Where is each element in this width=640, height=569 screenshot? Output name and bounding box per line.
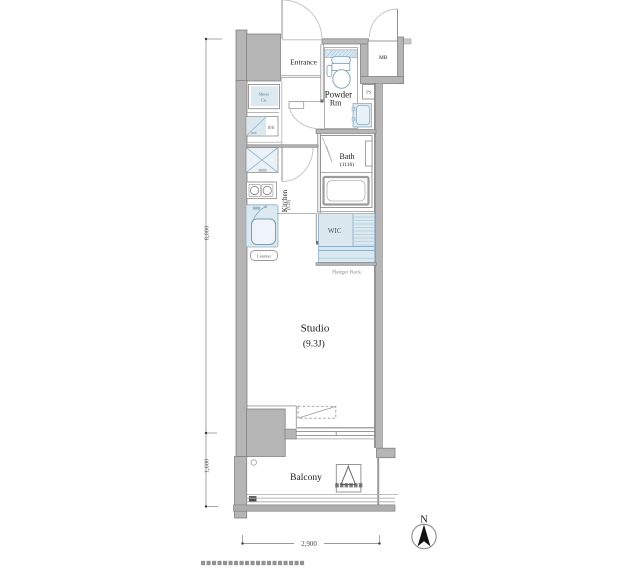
svg-text:(9.3J): (9.3J) — [303, 339, 325, 350]
svg-text:Rm: Rm — [330, 98, 342, 107]
svg-text:Hanger Rack: Hanger Rack — [332, 270, 361, 276]
svg-text:Shoes: Shoes — [259, 92, 270, 97]
svg-text:2,900: 2,900 — [301, 540, 317, 548]
svg-text:8,000: 8,000 — [204, 226, 211, 241]
svg-text:MB: MB — [379, 55, 388, 61]
svg-text:Cn.: Cn. — [261, 98, 267, 103]
svg-text:(1116): (1116) — [340, 161, 354, 168]
svg-text:Entrance: Entrance — [290, 57, 317, 66]
svg-text:Bath: Bath — [339, 152, 354, 161]
svg-text:(2.2J): (2.2J) — [286, 199, 291, 210]
svg-text:N: N — [420, 515, 428, 526]
svg-text:Studio: Studio — [301, 323, 330, 335]
svg-text:Balcony: Balcony — [290, 473, 322, 483]
svg-text:1,600: 1,600 — [204, 459, 211, 474]
svg-text:WIC: WIC — [328, 227, 342, 235]
svg-text:Counter: Counter — [257, 254, 272, 259]
svg-text:PS: PS — [366, 90, 372, 95]
